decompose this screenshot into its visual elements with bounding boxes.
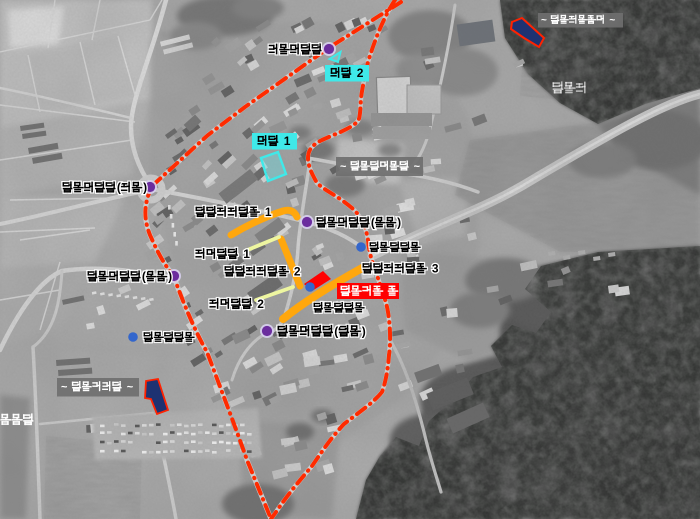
- svg-text:(: (: [334, 325, 338, 339]
- svg-text:1: 1: [265, 205, 272, 219]
- svg-text:~: ~: [541, 15, 547, 26]
- svg-text:1: 1: [284, 134, 291, 148]
- svg-text:~: ~: [414, 161, 421, 173]
- svg-text:~: ~: [127, 382, 134, 394]
- svg-text:2: 2: [357, 66, 364, 80]
- svg-text:~: ~: [609, 15, 615, 26]
- svg-text:): ): [168, 270, 172, 284]
- svg-text:(: (: [117, 181, 121, 195]
- svg-text:2: 2: [294, 265, 301, 279]
- svg-text:): ): [397, 216, 401, 230]
- svg-text:(: (: [371, 216, 375, 230]
- svg-text:1: 1: [243, 247, 250, 261]
- svg-text:): ): [143, 181, 147, 195]
- svg-text:~: ~: [61, 382, 68, 394]
- svg-text:): ): [362, 325, 366, 339]
- svg-text:(: (: [142, 270, 146, 284]
- svg-text:~: ~: [340, 161, 347, 173]
- svg-text:2: 2: [257, 297, 264, 311]
- svg-text:3: 3: [432, 262, 439, 276]
